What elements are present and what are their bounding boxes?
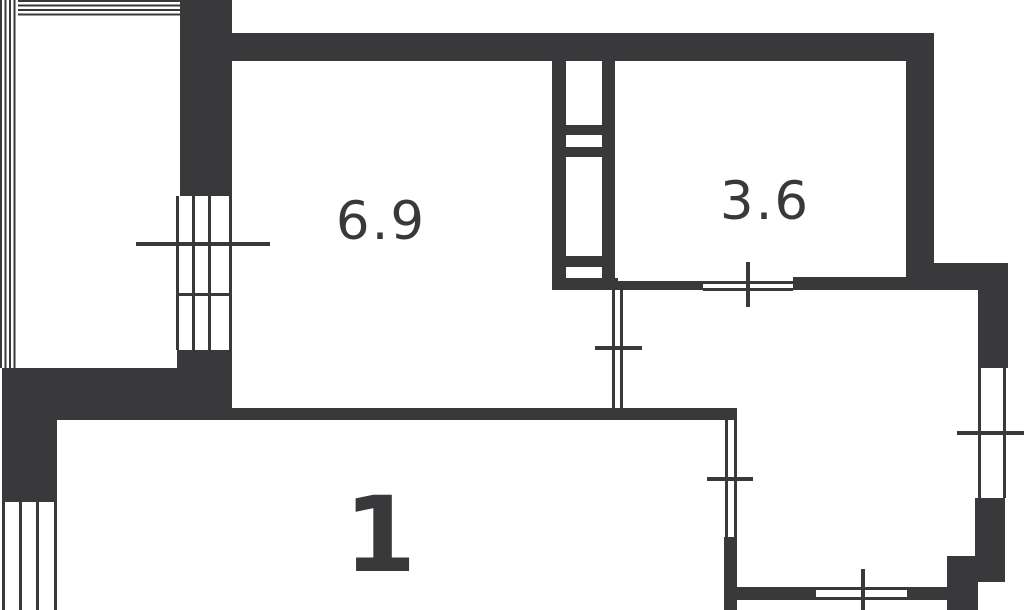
left-window-line-4 <box>54 502 57 610</box>
wall-balcony-partition-upper <box>180 0 232 196</box>
wall-top <box>232 33 934 61</box>
balcony-glazing-left <box>0 0 18 368</box>
tick-bottom-window <box>861 569 865 610</box>
room-label-3-6: 3.6 <box>685 171 845 231</box>
wall-left-window-cap <box>2 498 57 502</box>
tick-room36-opening <box>746 262 750 307</box>
wall-bottom-left <box>737 587 816 600</box>
wall-right-foot <box>947 556 978 610</box>
vent-shaft-right-wall <box>602 61 615 278</box>
wall-hall-top-left <box>615 281 703 290</box>
tick-balcony-window <box>136 242 270 246</box>
tick-right-window <box>957 431 1024 435</box>
wall-right-step <box>906 263 1008 290</box>
left-window-line-3 <box>36 502 39 610</box>
left-window-line-1 <box>2 502 5 610</box>
wall-right-upper <box>906 61 934 263</box>
wall-bottom-right <box>907 587 947 600</box>
tick-door-69 <box>595 346 642 350</box>
vent-shaft-divider-3 <box>566 256 602 267</box>
balcony-glazing-top <box>0 0 180 18</box>
floor-plan: 6.9 3.6 1 <box>0 0 1024 610</box>
wall-hall-top-right <box>793 277 906 290</box>
wall-left-exterior <box>2 420 57 498</box>
room-label-6-9: 6.9 <box>301 191 461 251</box>
tick-door-room1 <box>707 477 753 481</box>
balcony-window-line-4 <box>229 196 232 350</box>
wall-left-band <box>2 368 232 420</box>
balcony-window-line-1 <box>176 196 179 350</box>
vent-shaft-bottom-wall <box>552 278 618 290</box>
wall-right-lower <box>975 498 1005 582</box>
left-window-line-2 <box>19 502 22 610</box>
balcony-window-line-3 <box>208 196 211 350</box>
wall-room1-top <box>232 408 737 420</box>
room-label-1: 1 <box>330 485 430 585</box>
wall-balcony-partition-lower <box>177 350 232 368</box>
vent-shaft-left-wall <box>552 61 566 290</box>
balcony-window-mid-line <box>176 293 232 296</box>
vent-shaft-divider-2 <box>566 147 602 157</box>
wall-right-mid <box>978 290 1008 368</box>
vent-shaft-divider-1 <box>566 125 602 135</box>
wall-hall-right <box>724 537 737 610</box>
balcony-window-line-2 <box>192 196 195 350</box>
